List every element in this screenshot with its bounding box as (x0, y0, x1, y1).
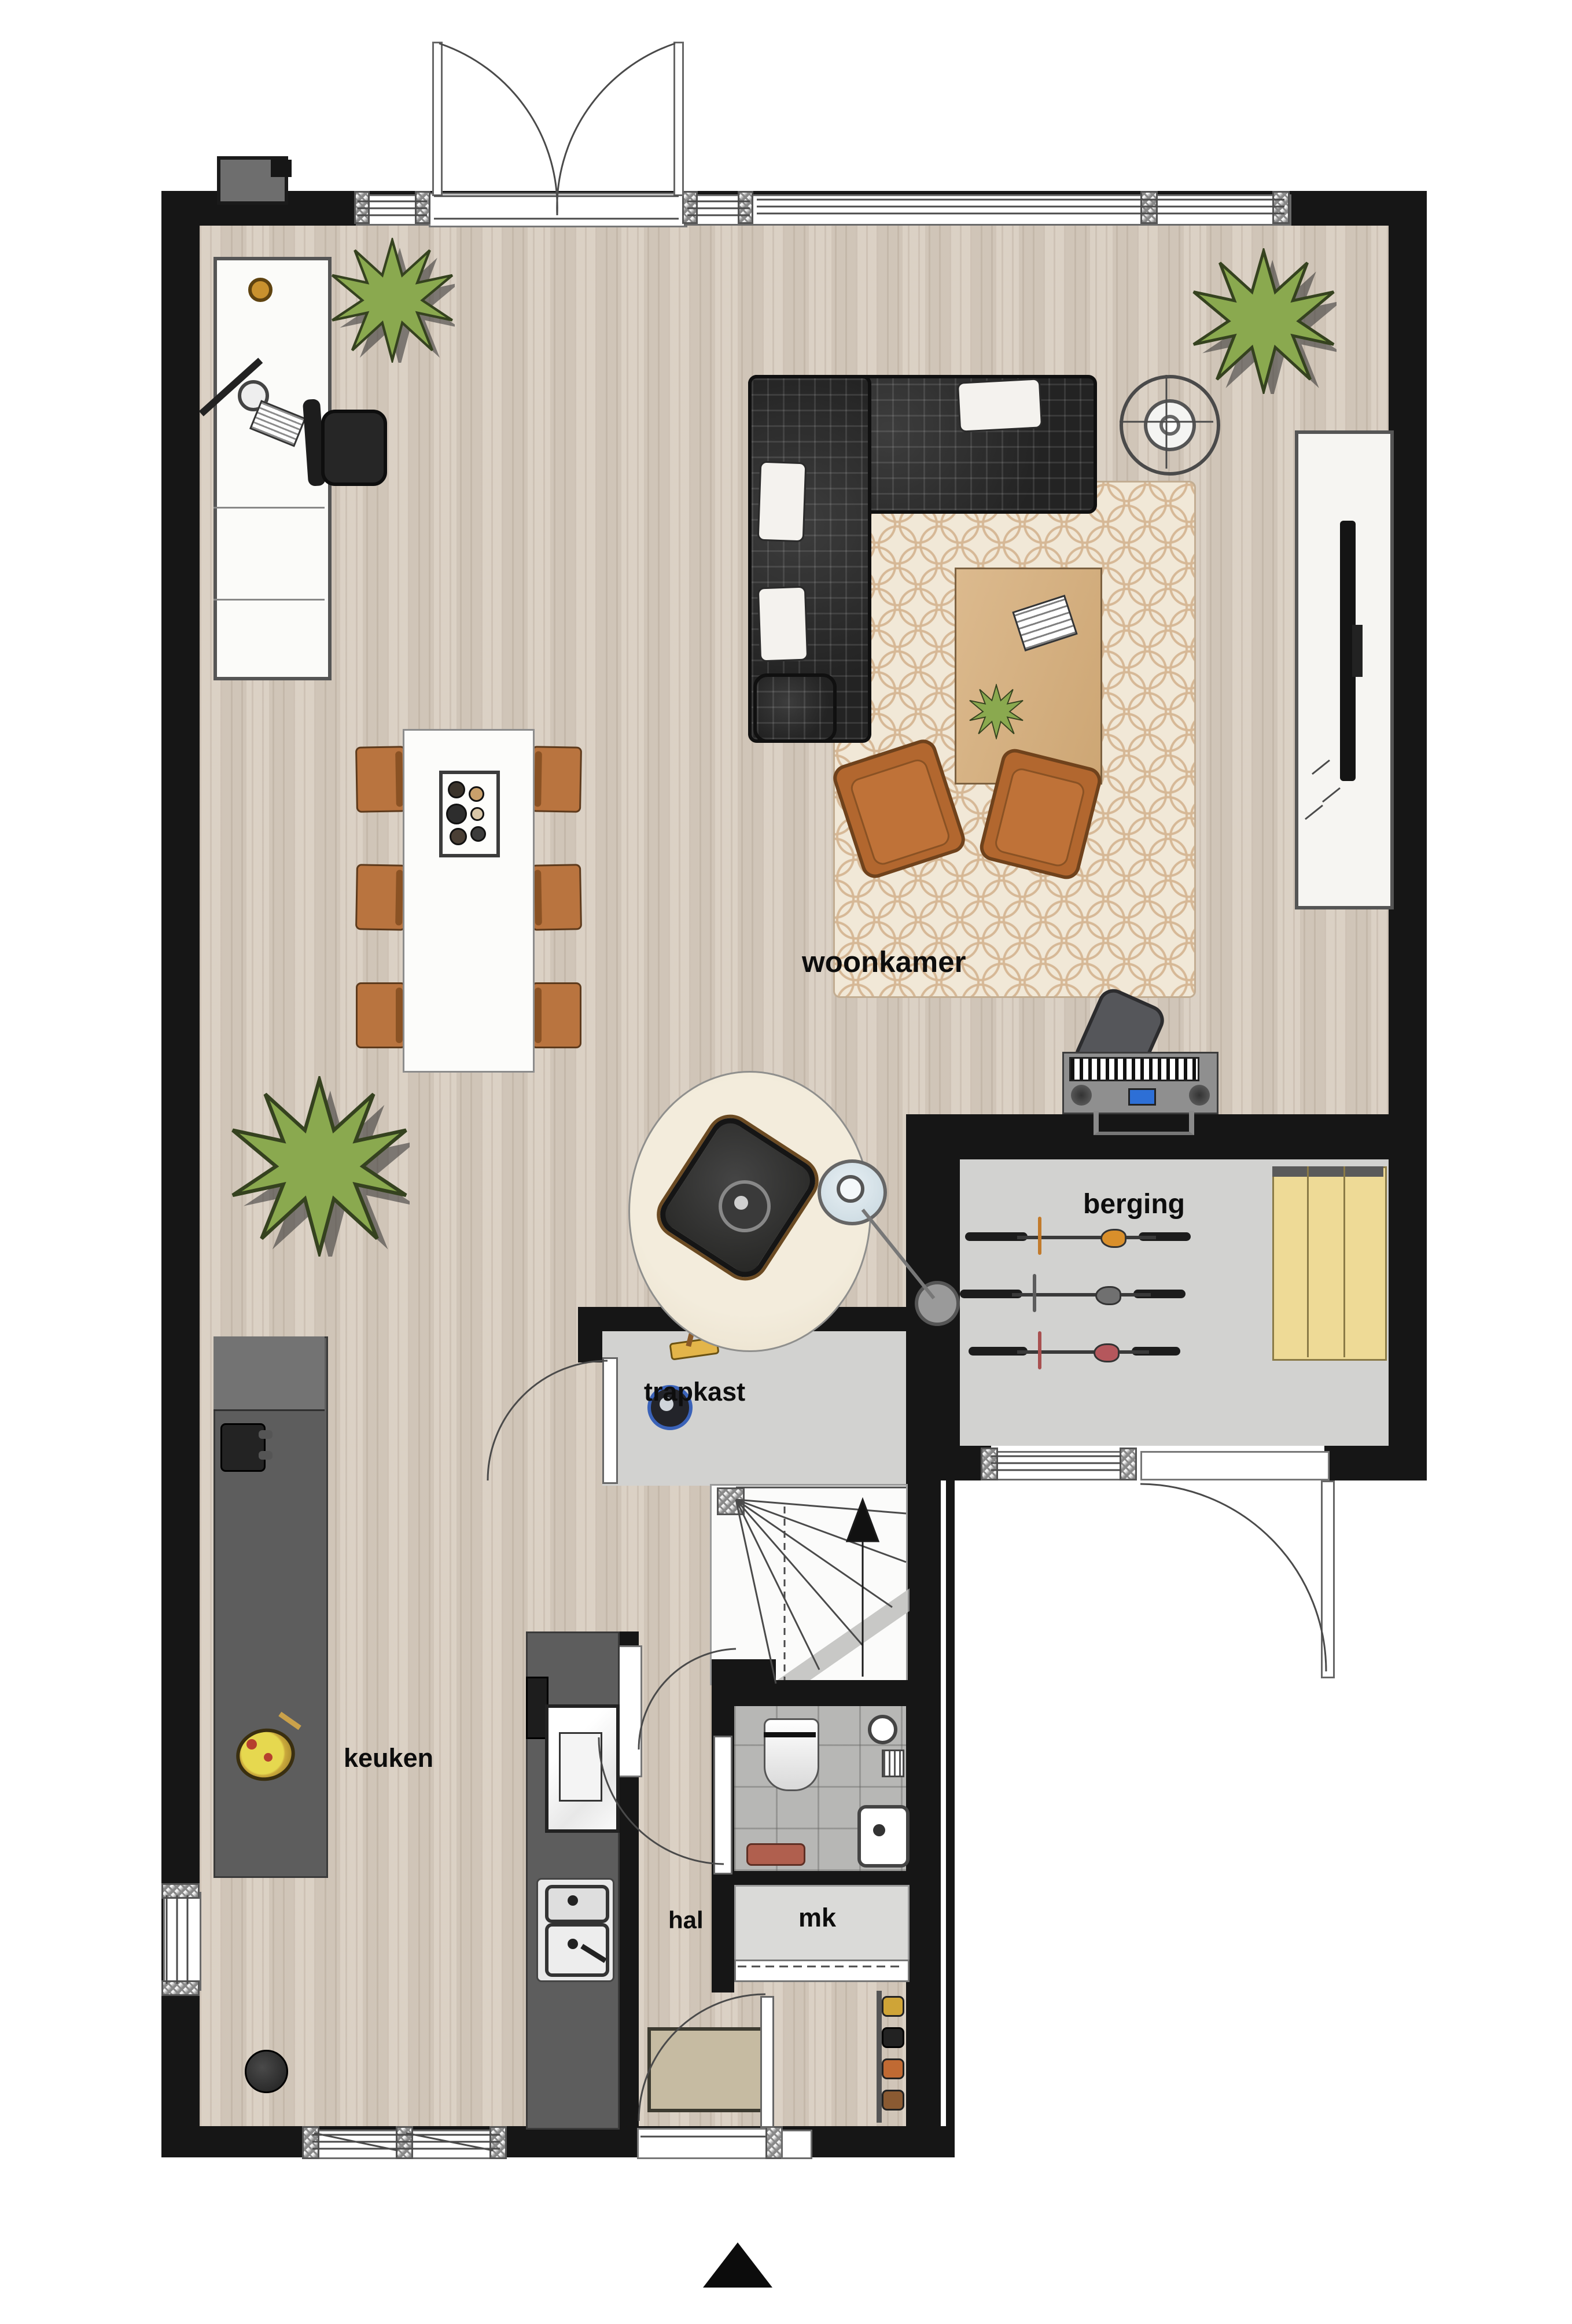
label-living-room: woonkamer (802, 946, 966, 981)
kitchen-appliance-block (213, 1336, 325, 1411)
plan-detail (1038, 1331, 1041, 1369)
sofa-ottoman (753, 673, 837, 743)
boundary-wall (946, 1480, 955, 2157)
coffee-cup (259, 1430, 273, 1439)
arc-lamp-base (915, 1281, 960, 1326)
dining-chair (356, 982, 406, 1048)
label-hall: hal (668, 1906, 704, 1933)
lounge-chair-hub (734, 1196, 748, 1210)
toilet-sink-icon (857, 1805, 910, 1868)
sink-bowl (545, 1923, 609, 1977)
bike-icon (960, 1276, 1186, 1310)
shoes (882, 1996, 904, 2017)
shoes (882, 2058, 904, 2079)
label-meter-cupboard: mk (798, 1904, 836, 1933)
plan-detail (970, 685, 1023, 738)
plant-icon (1191, 248, 1337, 394)
window-post (491, 2128, 505, 2157)
dining-chair (355, 864, 407, 931)
sofa-cushion (757, 461, 807, 543)
desk-divider (213, 507, 325, 509)
sink-drain (873, 1824, 885, 1836)
wall-stairs-bottom (776, 1680, 939, 1706)
cabinet-divider (1307, 1166, 1309, 1357)
window-post (767, 2128, 781, 2157)
bowl (470, 807, 484, 821)
bike-icon (965, 1218, 1191, 1253)
waste-bin-icon (245, 2050, 288, 2093)
wall-toilet-top (712, 1659, 776, 1706)
window-post (684, 193, 696, 222)
window-post (739, 193, 752, 222)
chimney-cap (271, 160, 292, 177)
piano-keys (1069, 1057, 1199, 1081)
front-door-sidelight (781, 2130, 812, 2159)
plan-detail (1100, 1229, 1126, 1248)
piano-speaker (1071, 1085, 1092, 1106)
coffee-machine-icon (220, 1423, 266, 1472)
tv-mount (1352, 625, 1363, 677)
wall-bottom (161, 2126, 955, 2157)
label-storage: berging (1083, 1191, 1185, 1222)
window-post (356, 193, 368, 222)
sofa-cushion (757, 586, 808, 662)
plan-detail (395, 870, 403, 925)
stair-closet-door-leaf (602, 1357, 618, 1484)
front-door-leaf (760, 1996, 774, 2128)
desk-divider (213, 599, 325, 601)
storage-cabinet (1272, 1166, 1387, 1361)
window-post (163, 1982, 198, 1994)
bike-icon (969, 1333, 1180, 1368)
label-kitchen: keuken (344, 1744, 433, 1774)
kitchen-counter-left (213, 1336, 328, 1878)
doormat (647, 2027, 765, 2112)
wall-storage-bottom-right (1324, 1446, 1427, 1480)
front-door-opening (637, 2128, 771, 2159)
toilet-door-leaf (713, 1736, 732, 1874)
lamp-center (1159, 415, 1180, 436)
keyboard-piano (1062, 1052, 1218, 1114)
north-arrow-icon (703, 2242, 772, 2288)
cabinet-divider (1343, 1166, 1345, 1357)
floor-plan: woonkamer berging trapkast keuken hal mk (0, 0, 1572, 2324)
window-post (397, 2128, 411, 2157)
plan-detail (1095, 1286, 1121, 1305)
window-post (1274, 193, 1288, 222)
sofa-cushion (957, 378, 1043, 432)
plan-detail (848, 757, 952, 867)
bowl (446, 804, 467, 824)
bowl (450, 828, 467, 845)
dining-chair (531, 864, 582, 931)
dining-chair (531, 982, 581, 1048)
label-stair-closet: trapkast (644, 1378, 745, 1408)
sink-drain (568, 1939, 578, 1949)
toilet-rug (746, 1843, 805, 1866)
plant-icon (330, 238, 455, 363)
toilet-icon (764, 1718, 819, 1791)
stair-newel-post (719, 1489, 743, 1513)
plan-detail (1038, 1217, 1041, 1255)
plan-detail (439, 43, 557, 215)
toilet-seat-line (764, 1732, 816, 1737)
window-top-right-long (752, 194, 1291, 226)
piano-stand (1094, 1111, 1194, 1135)
plan-detail (1140, 1484, 1326, 1671)
plan-detail (993, 766, 1086, 868)
plan-detail (534, 870, 542, 925)
salad-tomato (264, 1753, 273, 1762)
sink-drain (568, 1895, 578, 1906)
window-post (982, 1449, 996, 1479)
shoes (882, 2027, 904, 2048)
meter-cupboard-door (734, 1960, 910, 1982)
wall-stairclo-left (578, 1307, 602, 1362)
piano-display (1128, 1088, 1156, 1106)
shoes (882, 2090, 904, 2111)
hob-inner (559, 1732, 602, 1802)
bowl (469, 786, 484, 802)
window-post (417, 193, 429, 222)
plan-detail (535, 988, 542, 1043)
storage-door-leaf (1321, 1480, 1335, 1678)
plan-detail (970, 685, 1023, 738)
plan-detail (557, 43, 675, 215)
wall-right (1389, 191, 1427, 1480)
plan-detail (1017, 1350, 1149, 1353)
plant-icon (969, 684, 1024, 739)
window-post (1142, 193, 1156, 222)
sink-drainer (545, 1885, 609, 1923)
kitchen-hall-door (616, 1645, 642, 1777)
french-door-leaf-left (432, 42, 443, 196)
bowl (448, 781, 465, 798)
bowl (470, 826, 486, 842)
coffee-cup (259, 1451, 273, 1460)
storage-cabinet-top (1272, 1166, 1383, 1177)
window-post (304, 2128, 318, 2157)
dining-chair (531, 746, 582, 813)
plan-detail (1094, 1343, 1120, 1362)
desk-lamp-knob (248, 278, 273, 302)
salad-tomato (246, 1739, 257, 1750)
dining-chair (355, 746, 407, 813)
window-left-bottom (163, 1892, 201, 1991)
french-door-leaf-right (673, 42, 684, 196)
stairs (712, 1486, 906, 1684)
plant-icon (229, 1076, 410, 1257)
wall-toilet-mk (734, 1871, 906, 1885)
arc-lamp-bulb (837, 1175, 864, 1203)
toilet-roll-holder-icon (882, 1750, 904, 1777)
piano-speaker (1189, 1085, 1210, 1106)
french-door-opening (429, 193, 687, 227)
storage-door-opening (1140, 1451, 1330, 1480)
window-post (1121, 1449, 1135, 1479)
wall-east-lower (906, 1114, 941, 2157)
plan-detail (395, 751, 403, 806)
plan-detail (1033, 1274, 1036, 1312)
plan-detail (396, 988, 403, 1043)
window-storage-bottom (988, 1451, 1128, 1480)
office-chair-seat (321, 410, 387, 486)
window-post (163, 1885, 198, 1897)
shoe-rack (877, 1991, 882, 2123)
plan-detail (534, 751, 542, 806)
toilet-tap-icon (868, 1715, 897, 1744)
wall-left (161, 191, 200, 2157)
